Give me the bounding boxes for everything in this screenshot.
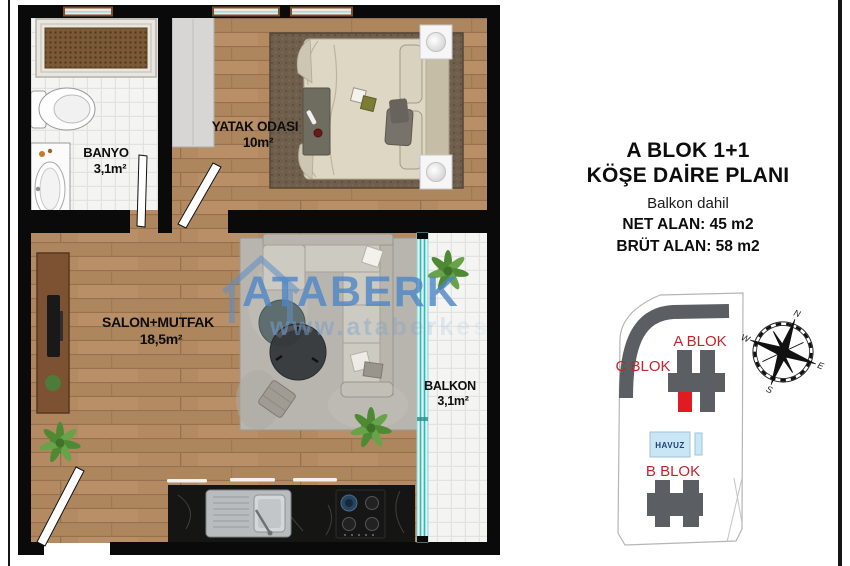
- toilet: [31, 88, 95, 130]
- small-plant-icon: [45, 375, 61, 391]
- brut-area: BRÜT ALAN: 58 m2: [568, 236, 808, 258]
- compass-rose-icon: N S E W: [740, 307, 828, 395]
- highlighted-unit: [678, 392, 692, 412]
- stove-cooktop: [336, 490, 385, 538]
- kitchen-sink: [206, 490, 291, 537]
- balkon-label: BALKON: [424, 379, 476, 393]
- lamp-icon: [427, 163, 446, 182]
- banyo-area: 3,1m²: [94, 161, 127, 176]
- shower: [36, 19, 156, 77]
- tv-icon: [47, 295, 60, 357]
- right-border-line: [838, 0, 842, 566]
- salon-mutfak-area: 18,5m²: [140, 331, 183, 347]
- title-line-1: A BLOK 1+1: [568, 138, 808, 163]
- bed-bench: [303, 88, 330, 155]
- window-icon: [212, 7, 280, 17]
- watermark-brand: ATABERK: [242, 268, 460, 316]
- info-panel: A BLOK 1+1 KÖŞE DAİRE PLANI Balkon dahil…: [568, 138, 808, 258]
- compass-w: W: [740, 332, 753, 345]
- pool-label: HAVUZ: [655, 441, 684, 450]
- cabinet-handle: [230, 478, 275, 482]
- burner: [366, 497, 379, 510]
- compass-n: N: [792, 308, 802, 320]
- burner: [343, 518, 356, 531]
- window-icon: [290, 7, 353, 17]
- block-b-label: B BLOK: [646, 463, 700, 480]
- nightstand-bottom: [420, 155, 452, 189]
- burner: [366, 518, 379, 531]
- lamp-icon: [427, 33, 446, 52]
- salon-mutfak-label: SALON+MUTFAK: [102, 314, 214, 330]
- net-area: NET ALAN: 45 m2: [568, 214, 808, 236]
- left-border-line: [8, 0, 10, 566]
- throw-pillow: [363, 362, 383, 378]
- yatak-odasi-area: 10m²: [243, 135, 274, 150]
- compass-s: S: [765, 384, 774, 395]
- tv-console: [37, 253, 69, 413]
- balkon-area: 3,1m²: [437, 394, 468, 408]
- subtitle: Balkon dahil: [568, 194, 808, 214]
- floorplan-page: ATABERK www.ataberkes BANYO 3,1m² YATAK …: [0, 0, 850, 566]
- wardrobe: [172, 17, 214, 147]
- nightstand-top: [420, 25, 452, 59]
- compass-e: E: [816, 360, 826, 372]
- window-icon: [63, 7, 113, 17]
- watermark-url: www.ataberkes: [269, 313, 490, 341]
- apartment-floorplan: ATABERK www.ataberkes BANYO 3,1m² YATAK …: [18, 5, 500, 555]
- block-a-label: A BLOK: [673, 333, 726, 350]
- cabinet-handle: [167, 479, 207, 483]
- bathroom-door: [137, 155, 147, 227]
- yatak-odasi-label: YATAK ODASI: [212, 119, 298, 134]
- title-line-2: KÖŞE DAİRE PLANI: [568, 163, 808, 188]
- banyo-label: BANYO: [83, 145, 129, 160]
- cabinet-handle: [293, 478, 337, 482]
- block-c-label: C BLOK: [615, 358, 670, 375]
